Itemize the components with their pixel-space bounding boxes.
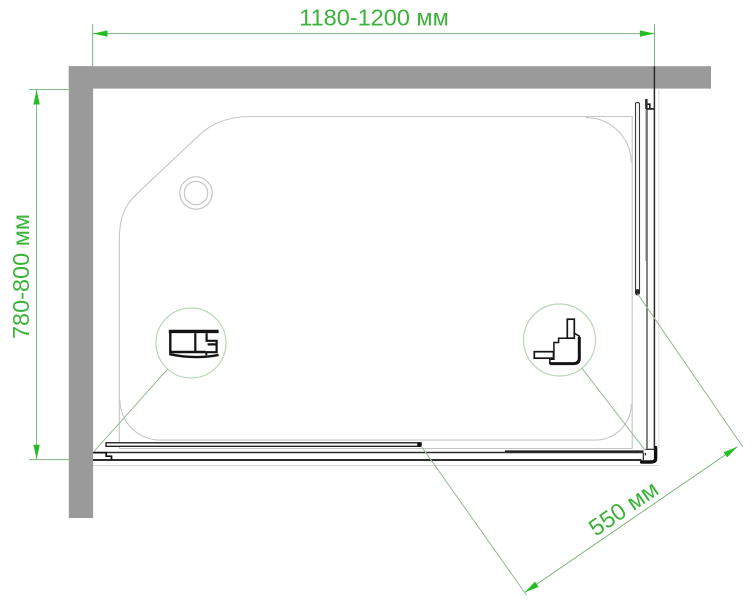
svg-text:780-800 мм: 780-800 мм bbox=[8, 214, 34, 339]
svg-text:1180-1200 мм: 1180-1200 мм bbox=[299, 5, 448, 31]
